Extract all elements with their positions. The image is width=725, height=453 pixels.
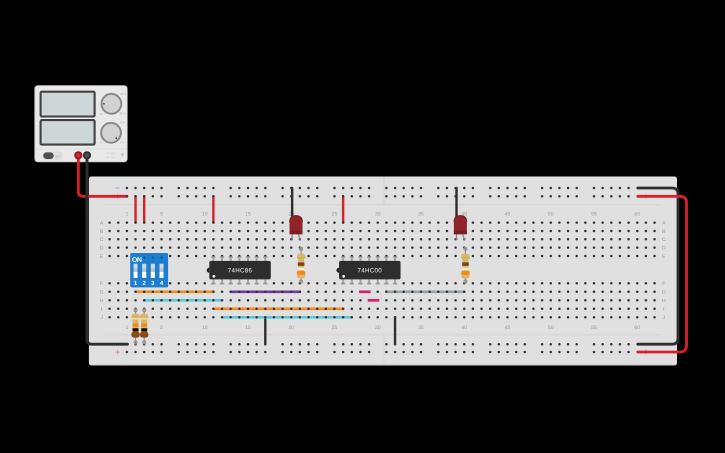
svg-text:B: B <box>662 229 666 235</box>
svg-text:E: E <box>662 254 666 260</box>
svg-text:74HC00: 74HC00 <box>358 267 383 274</box>
svg-text:OFF: OFF <box>55 156 61 159</box>
svg-text:I: I <box>663 307 664 313</box>
svg-text:15: 15 <box>245 325 251 331</box>
svg-text:C: C <box>100 237 104 243</box>
svg-text:I: I <box>101 307 102 313</box>
svg-text:A: A <box>662 221 666 227</box>
svg-text:35: 35 <box>418 212 424 218</box>
svg-text:D: D <box>100 246 104 252</box>
svg-text:55: 55 <box>591 325 597 331</box>
svg-text:74HC86: 74HC86 <box>228 267 253 274</box>
svg-text:30: 30 <box>375 325 381 331</box>
svg-text:1 A: 1 A <box>120 141 124 145</box>
svg-text:25: 25 <box>332 325 338 331</box>
svg-text:J: J <box>663 315 666 321</box>
svg-text:30 V: 30 V <box>120 112 126 116</box>
svg-text:A0 10A: A0 10A <box>106 156 116 160</box>
svg-text:35: 35 <box>418 325 424 331</box>
svg-text:25: 25 <box>332 212 338 218</box>
svg-text:H: H <box>100 298 104 304</box>
svg-text:50: 50 <box>548 325 554 331</box>
svg-text:40: 40 <box>461 325 467 331</box>
svg-text:ON: ON <box>132 257 142 264</box>
svg-text:0 m: 0 m <box>120 121 126 125</box>
svg-text:30: 30 <box>375 212 381 218</box>
svg-text:F: F <box>662 281 665 287</box>
svg-text:A: A <box>100 221 104 227</box>
svg-text:55: 55 <box>591 212 597 218</box>
svg-text:1: 1 <box>125 325 128 331</box>
svg-text:60: 60 <box>634 325 640 331</box>
svg-text:10: 10 <box>202 212 208 218</box>
svg-text:B: B <box>100 229 104 235</box>
svg-text:15: 15 <box>245 212 251 218</box>
svg-text:G: G <box>662 290 666 296</box>
svg-text:E: E <box>100 254 104 260</box>
svg-text:5: 5 <box>160 325 163 331</box>
svg-text:20: 20 <box>288 325 294 331</box>
svg-text:50: 50 <box>548 212 554 218</box>
svg-text:1: 1 <box>125 212 128 218</box>
svg-text:12 V: 12 V <box>120 92 126 96</box>
svg-text:C: C <box>662 237 666 243</box>
svg-text:F: F <box>100 281 103 287</box>
svg-text:60: 60 <box>634 212 640 218</box>
svg-text:D: D <box>662 246 666 252</box>
svg-text:45: 45 <box>505 212 511 218</box>
svg-text:10: 10 <box>202 325 208 331</box>
svg-text:45: 45 <box>505 325 511 331</box>
svg-text:H: H <box>662 298 666 304</box>
svg-text:G: G <box>100 290 104 296</box>
svg-text:5: 5 <box>160 212 163 218</box>
